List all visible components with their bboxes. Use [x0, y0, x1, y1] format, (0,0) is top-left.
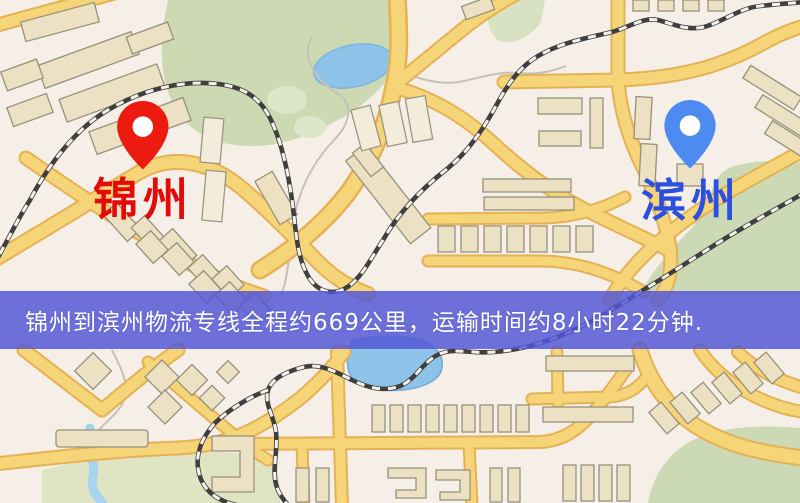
- map: 锦州 滨州 锦州到滨州物流专线全程约669公里，运输时间约8小时22分钟.: [0, 0, 800, 503]
- route-info-text: 锦州到滨州物流专线全程约669公里，运输时间约8小时22分钟.: [0, 303, 703, 337]
- map-canvas: [0, 0, 800, 503]
- destination-city-label: 滨州: [641, 179, 741, 224]
- origin-city-label: 锦州: [93, 178, 193, 223]
- route-info-banner: 锦州到滨州物流专线全程约669公里，运输时间约8小时22分钟.: [0, 291, 800, 349]
